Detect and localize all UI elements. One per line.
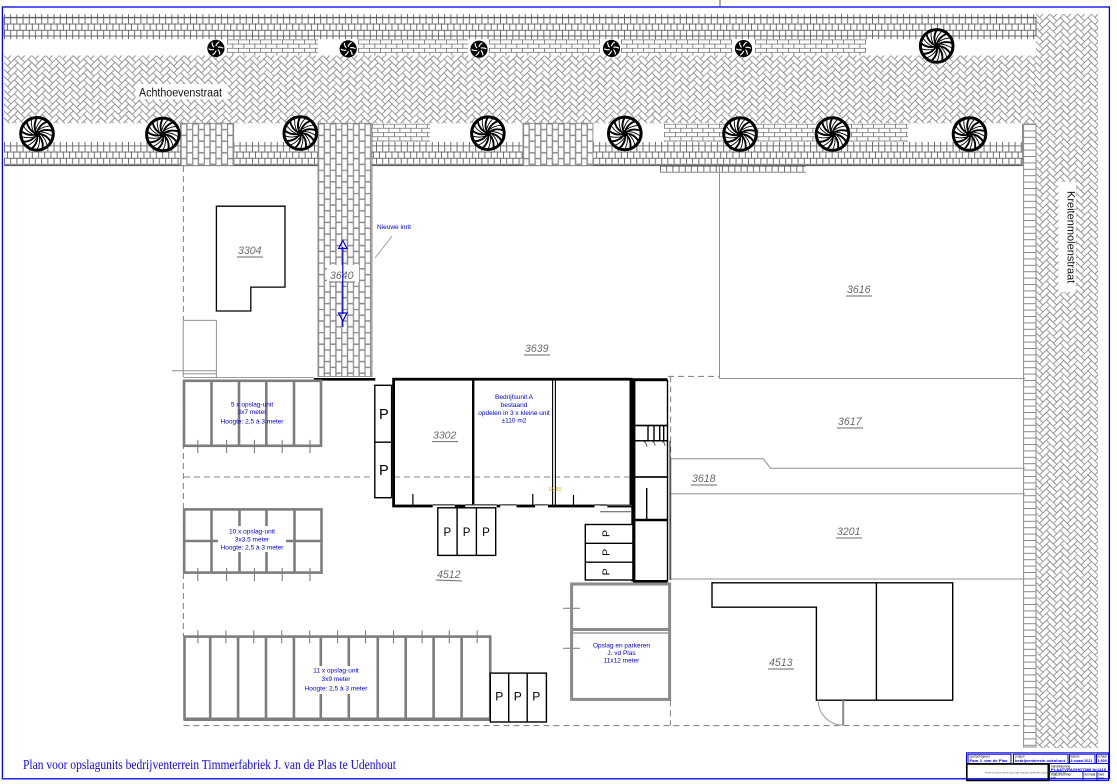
svg-text:11x12 meter: 11x12 meter <box>604 657 640 664</box>
svg-text:8 maart 2021: 8 maart 2021 <box>1071 759 1093 763</box>
svg-text:bestaand: bestaand <box>501 402 528 409</box>
svg-text:3617: 3617 <box>838 416 863 428</box>
svg-text:P: P <box>482 527 490 539</box>
svg-text:11 x opslag-unit: 11 x opslag-unit <box>313 668 359 675</box>
svg-text:Plan voor opslagunits bedrijve: Plan voor opslagunits bedrijventerrein T… <box>23 757 396 772</box>
svg-text:formaat: formaat <box>1085 773 1096 777</box>
svg-text:Hoogte: 2,5 à 3 meter: Hoogte: 2,5 à 3 meter <box>305 686 369 693</box>
svg-text:4512: 4512 <box>437 569 461 581</box>
svg-text:3x9 meter: 3x9 meter <box>322 676 352 683</box>
svg-text:P: P <box>514 689 522 703</box>
svg-text:P: P <box>444 527 452 539</box>
svg-text:J. vd Plas: J. vd Plas <box>607 650 636 657</box>
svg-text:niets uit deze tekening mag wo: niets uit deze tekening mag worden gebru… <box>985 771 1066 775</box>
svg-text:Fam J. van de Plas: Fam J. van de Plas <box>970 759 1008 763</box>
svg-text:P: P <box>379 407 389 423</box>
svg-text:±110 m2: ±110 m2 <box>502 418 527 425</box>
svg-text:3616: 3616 <box>847 284 871 296</box>
svg-text:3302: 3302 <box>433 429 457 441</box>
svg-text:1:/s: 1:/s <box>1098 776 1104 780</box>
svg-text:5 x opslag-unit: 5 x opslag-unit <box>231 401 273 408</box>
svg-text:Bedrijfsunit A: Bedrijfsunit A <box>495 394 534 401</box>
svg-text:P: P <box>601 549 613 556</box>
svg-text:Kreitenmolenstraat: Kreitenmolenstraat <box>1065 191 1077 283</box>
svg-text:P: P <box>532 689 540 703</box>
svg-text:Nieuwe inrit: Nieuwe inrit <box>377 224 411 231</box>
svg-text:P: P <box>601 568 613 575</box>
svg-text:bedrijventerrein udenhout: bedrijventerrein udenhout <box>1015 759 1066 763</box>
svg-text:3304: 3304 <box>238 245 262 257</box>
svg-text:Opslag en parkeren: Opslag en parkeren <box>593 642 650 649</box>
svg-text:P: P <box>463 527 471 539</box>
svg-text:P: P <box>601 530 613 537</box>
svg-text:P: P <box>495 689 503 703</box>
svg-text:Hoogte: 2,5 à 3 meter: Hoogte: 2,5 à 3 meter <box>221 418 285 425</box>
svg-text:4513: 4513 <box>769 657 793 669</box>
svg-text:Hoogte: 2,5 à 3 meter: Hoogte: 2,5 à 3 meter <box>221 544 285 551</box>
svg-text:opdelen in 3 x kleine unit: opdelen in 3 x kleine unit <box>478 410 550 417</box>
svg-text:3x7 meter: 3x7 meter <box>238 409 268 416</box>
svg-text:10 x opslag-unit: 10 x opslag-unit <box>229 528 275 535</box>
svg-text:P: P <box>379 463 389 479</box>
svg-text:3x3.5 meter: 3x3.5 meter <box>235 537 270 544</box>
svg-text:3201: 3201 <box>837 526 861 538</box>
svg-text:U2: U2 <box>1051 776 1056 780</box>
svg-text:18,65: 18,65 <box>548 487 562 493</box>
svg-text:1:500: 1:500 <box>1098 759 1107 763</box>
svg-text:3618: 3618 <box>692 473 716 485</box>
svg-text:3640: 3640 <box>330 270 354 282</box>
svg-text:Achthoevenstraat: Achthoevenstraat <box>139 88 223 100</box>
svg-text:3639: 3639 <box>525 343 549 355</box>
